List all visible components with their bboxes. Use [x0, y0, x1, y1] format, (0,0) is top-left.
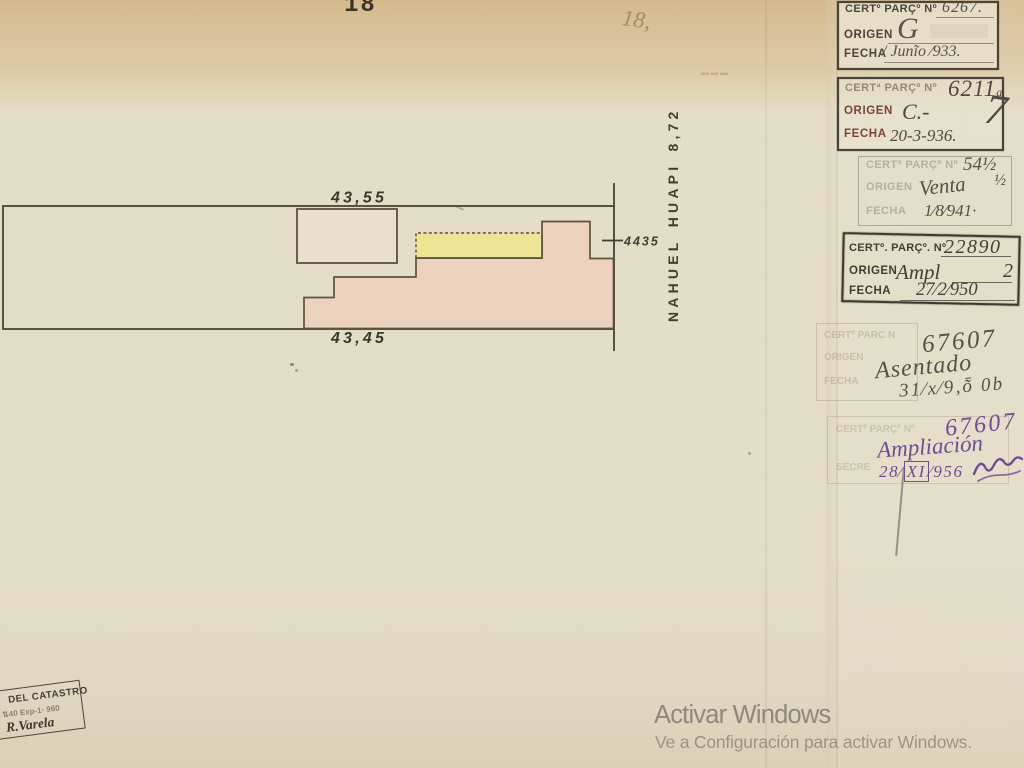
svg-text:43,55: 43,55 — [330, 190, 387, 207]
svg-text:NAHUEL HUAPI 8,72: NAHUEL HUAPI 8,72 — [665, 107, 681, 322]
svg-text:4435: 4435 — [623, 235, 660, 249]
svg-text:43,45: 43,45 — [330, 330, 387, 347]
